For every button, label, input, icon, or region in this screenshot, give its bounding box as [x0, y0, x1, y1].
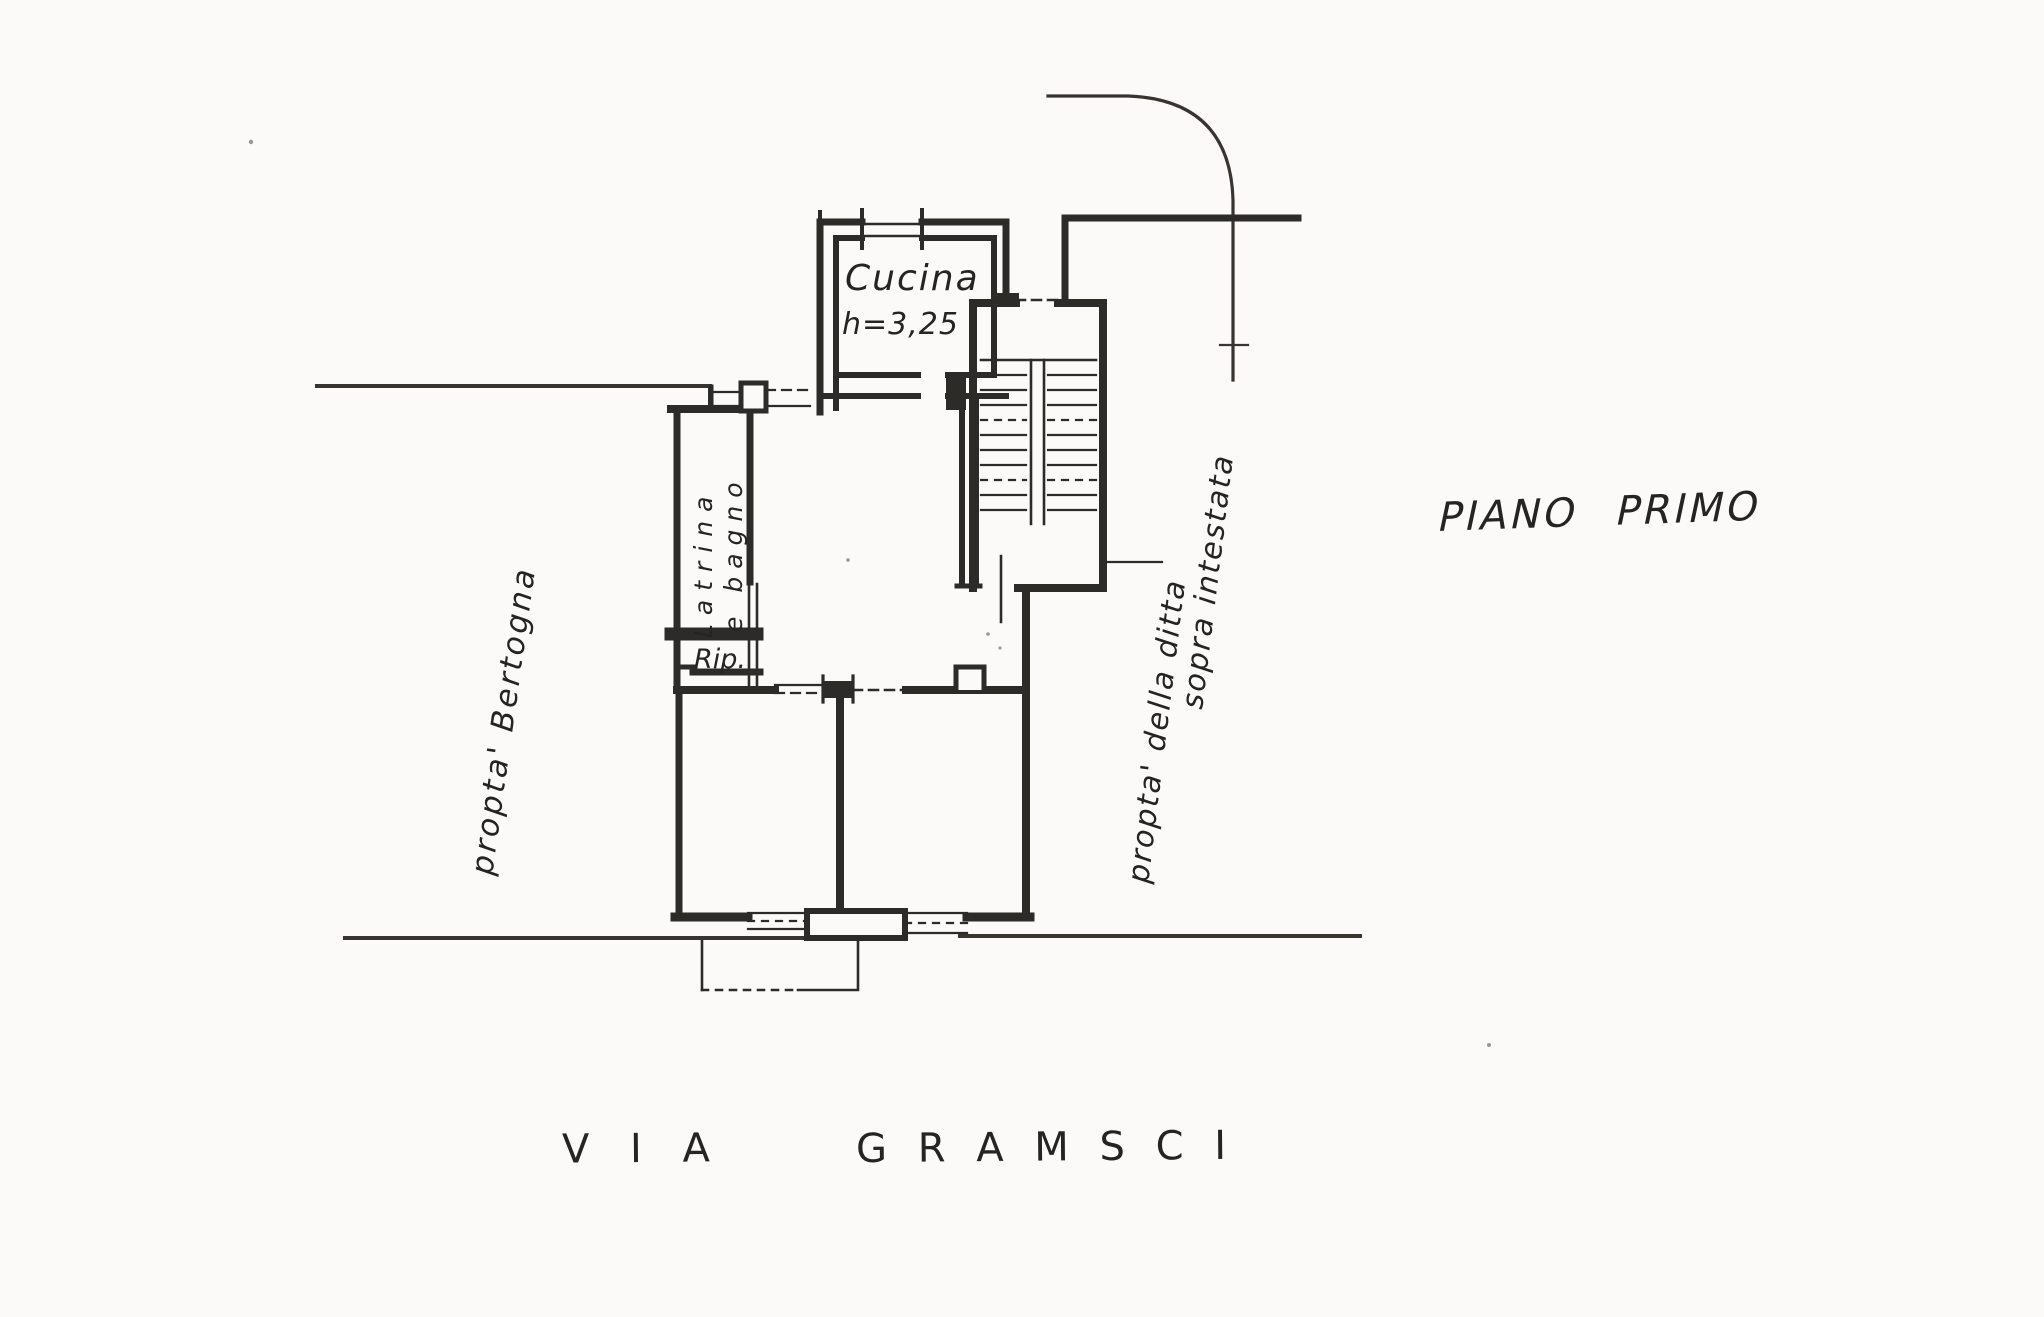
- balcony-outline: [702, 941, 858, 990]
- kitchen-height-note: h=3,25: [842, 307, 959, 342]
- scan-speck: [1487, 1043, 1491, 1047]
- main-room-walls: [749, 398, 980, 688]
- left-property-line: [317, 386, 710, 407]
- scan-speck: [986, 632, 990, 636]
- stair-treads-right-flight: [1048, 375, 1096, 510]
- floor-title-word2: PRIMO: [1612, 482, 1767, 535]
- kitchen-label: Cucina: [845, 258, 980, 299]
- stair-center-stringer: [1031, 360, 1044, 524]
- street-title: V I A G R A M S C I: [562, 1121, 1235, 1175]
- balcony-door-threshold: [807, 911, 905, 938]
- balcony-sides: [702, 941, 858, 990]
- scan-speck: [998, 646, 1001, 649]
- right-property-label-line1: propta' della ditta: [1121, 577, 1193, 886]
- floor-title-word1: PIANO: [1434, 488, 1584, 541]
- floor-title: PIANO PRIMO: [1432, 482, 1768, 541]
- bath-label-line2: e bagno: [719, 474, 748, 632]
- street-word-via: V I A: [562, 1125, 724, 1172]
- stairwell: [973, 303, 1162, 622]
- floor-plan-drawing: Cucina h=3,25 Rip. Latrina e bagno propt…: [0, 0, 2044, 1317]
- bath-label-line1: Latrina: [689, 488, 718, 638]
- street-word-name: G R A M S C I: [856, 1123, 1235, 1172]
- scan-speck: [846, 558, 850, 562]
- labels: Cucina h=3,25 Rip. Latrina e bagno propt…: [464, 258, 1241, 886]
- junction-jamb-box: [741, 383, 766, 411]
- storage-label: Rip.: [694, 644, 746, 675]
- scan-speck: [249, 140, 253, 144]
- curved-corner-line: [1048, 96, 1233, 380]
- landing-walls: [994, 218, 1298, 300]
- kitchen-window-sill-lines: [862, 224, 922, 236]
- flue-notch: [956, 667, 984, 690]
- scanned-floor-plan-page: Cucina h=3,25 Rip. Latrina e bagno propt…: [0, 0, 2044, 1317]
- left-property-label: propta' Bertogna: [464, 564, 543, 878]
